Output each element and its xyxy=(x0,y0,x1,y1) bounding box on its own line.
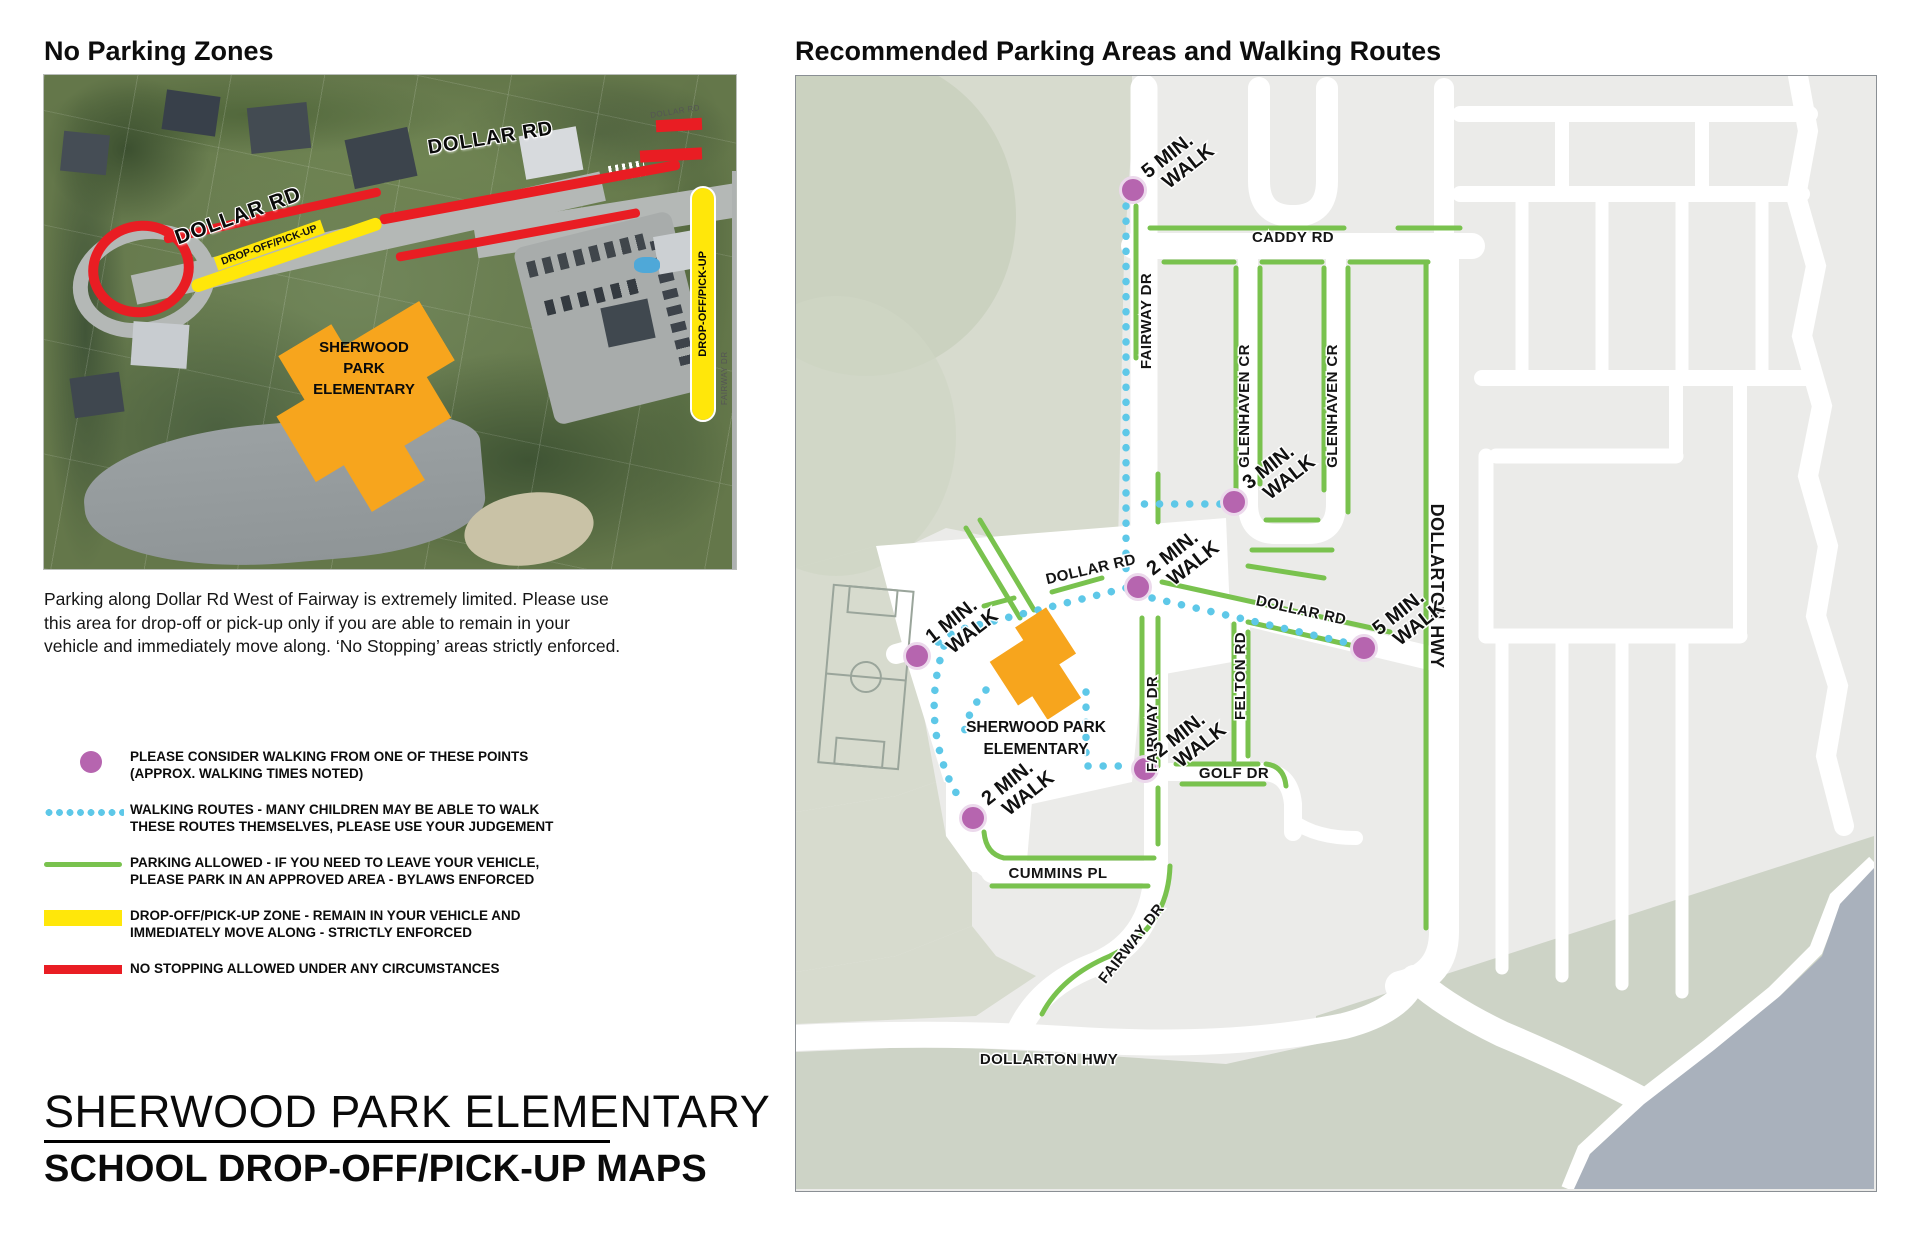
school-map-label-line1: SHERWOOD PARK xyxy=(966,719,1107,736)
school-label-line2: PARK xyxy=(284,358,444,379)
school-label-line3: ELEMENTARY xyxy=(284,379,444,400)
house-roof xyxy=(247,102,311,154)
legend-text: NO STOPPING ALLOWED UNDER ANY CIRCUMSTAN… xyxy=(130,960,500,977)
street-label-dollarton-bottom: DOLLARTON HWY xyxy=(980,1051,1118,1068)
footer-school-name: SHERWOOD PARK ELEMENTARY xyxy=(44,1086,770,1138)
street-label-dollarton-vertical: DOLLARTON HWY xyxy=(1427,504,1447,669)
street-label-glenhaven-west: GLENHAVEN CR xyxy=(1236,344,1253,468)
aerial-photo: DOLLAR RD DROP-OFF/PICK-UP DOLLAR RD SHE… xyxy=(44,75,736,569)
right-panel-title: Recommended Parking Areas and Walking Ro… xyxy=(795,36,1441,67)
photo-caption: Parking along Dollar Rd West of Fairway … xyxy=(44,588,624,659)
legend: PLEASE CONSIDER WALKING FROM ONE OF THES… xyxy=(44,748,644,996)
street-label-fairway-south: FAIRWAY DR xyxy=(1144,676,1161,772)
creek-ravine xyxy=(1796,76,1844,826)
street-label-cummins: CUMMINS PL xyxy=(1009,865,1108,882)
school-map-label-line2: ELEMENTARY xyxy=(983,741,1089,758)
legend-text: DROP-OFF/PICK-UP ZONE - REMAIN IN YOUR V… xyxy=(130,907,521,924)
dropoff-bar-label-wrap: DROP-OFF/PICK-UP xyxy=(692,188,714,420)
parking-allowed-line-swatch xyxy=(44,862,122,867)
school-label-line1: SHERWOOD xyxy=(284,337,444,358)
walk-point-dot xyxy=(1352,636,1377,661)
legend-text: PARKING ALLOWED - IF YOU NEED TO LEAVE Y… xyxy=(130,854,539,871)
street-label-caddy: CADDY RD xyxy=(1252,229,1334,246)
legend-text: WALKING ROUTES - MANY CHILDREN MAY BE AB… xyxy=(130,801,553,818)
no-stopping-bar-swatch xyxy=(44,965,122,974)
fairway-dr-small-label: FAIRWAY DR xyxy=(720,351,729,405)
walk-point-dot xyxy=(1126,575,1151,600)
legend-text: PLEASE PARK IN AN APPROVED AREA - BYLAWS… xyxy=(130,871,539,888)
fairway-dr-road xyxy=(732,171,736,569)
backyard-pool xyxy=(634,257,660,273)
street-label-golf: GOLF DR xyxy=(1199,765,1269,782)
footer-doc-title: SCHOOL DROP-OFF/PICK-UP MAPS xyxy=(44,1148,707,1191)
walk-point-dot-swatch xyxy=(80,751,102,773)
legend-item-parking-allowed: PARKING ALLOWED - IF YOU NEED TO LEAVE Y… xyxy=(44,854,644,888)
road-golf-stub xyxy=(1293,821,1356,838)
street-label-fairway-hook: FAIRWAY DR xyxy=(1095,901,1168,987)
street-label-glenhaven-east: GLENHAVEN CR xyxy=(1324,344,1341,468)
walk-point-dot xyxy=(905,644,930,669)
walking-routes-map: CADDY RD FAIRWAY DR GLENHAVEN CR GLENHAV… xyxy=(795,75,1877,1192)
street-label-fairway-north: FAIRWAY DR xyxy=(1138,273,1155,369)
footer-rule xyxy=(44,1140,610,1143)
legend-item-dropoff-zone: DROP-OFF/PICK-UP ZONE - REMAIN IN YOUR V… xyxy=(44,907,644,941)
no-stopping-bar xyxy=(656,118,703,132)
house-roof xyxy=(60,131,110,176)
dropoff-zone-bar-swatch xyxy=(44,910,122,926)
legend-item-walking-routes: WALKING ROUTES - MANY CHILDREN MAY BE AB… xyxy=(44,801,644,835)
road-top-loop xyxy=(1259,88,1327,216)
house-roof xyxy=(131,321,190,369)
left-panel-title: No Parking Zones xyxy=(44,36,274,67)
legend-text: PLEASE CONSIDER WALKING FROM ONE OF THES… xyxy=(130,748,528,765)
legend-text: (APPROX. WALKING TIMES NOTED) xyxy=(130,765,528,782)
street-label-felton: FELTON RD xyxy=(1232,632,1249,720)
walk-point-dot xyxy=(961,806,986,831)
house-roof xyxy=(161,89,220,136)
school-building-label: SHERWOOD PARK ELEMENTARY xyxy=(284,337,444,400)
legend-text: THESE ROUTES THEMSELVES, PLEASE USE YOUR… xyxy=(130,818,553,835)
dropoff-bar-label: DROP-OFF/PICK-UP xyxy=(697,251,709,357)
house-roof xyxy=(69,372,124,419)
legend-item-no-stopping: NO STOPPING ALLOWED UNDER ANY CIRCUMSTAN… xyxy=(44,960,644,977)
legend-item-walk-points: PLEASE CONSIDER WALKING FROM ONE OF THES… xyxy=(44,748,644,782)
poster: No Parking Zones xyxy=(0,0,1920,1242)
parking-line xyxy=(1248,566,1324,578)
walk-point-dot xyxy=(1222,490,1247,515)
walk-point-dot xyxy=(1121,178,1146,203)
legend-text: IMMEDIATELY MOVE ALONG - STRICTLY ENFORC… xyxy=(130,924,521,941)
walking-route-dotted-swatch xyxy=(44,808,124,817)
